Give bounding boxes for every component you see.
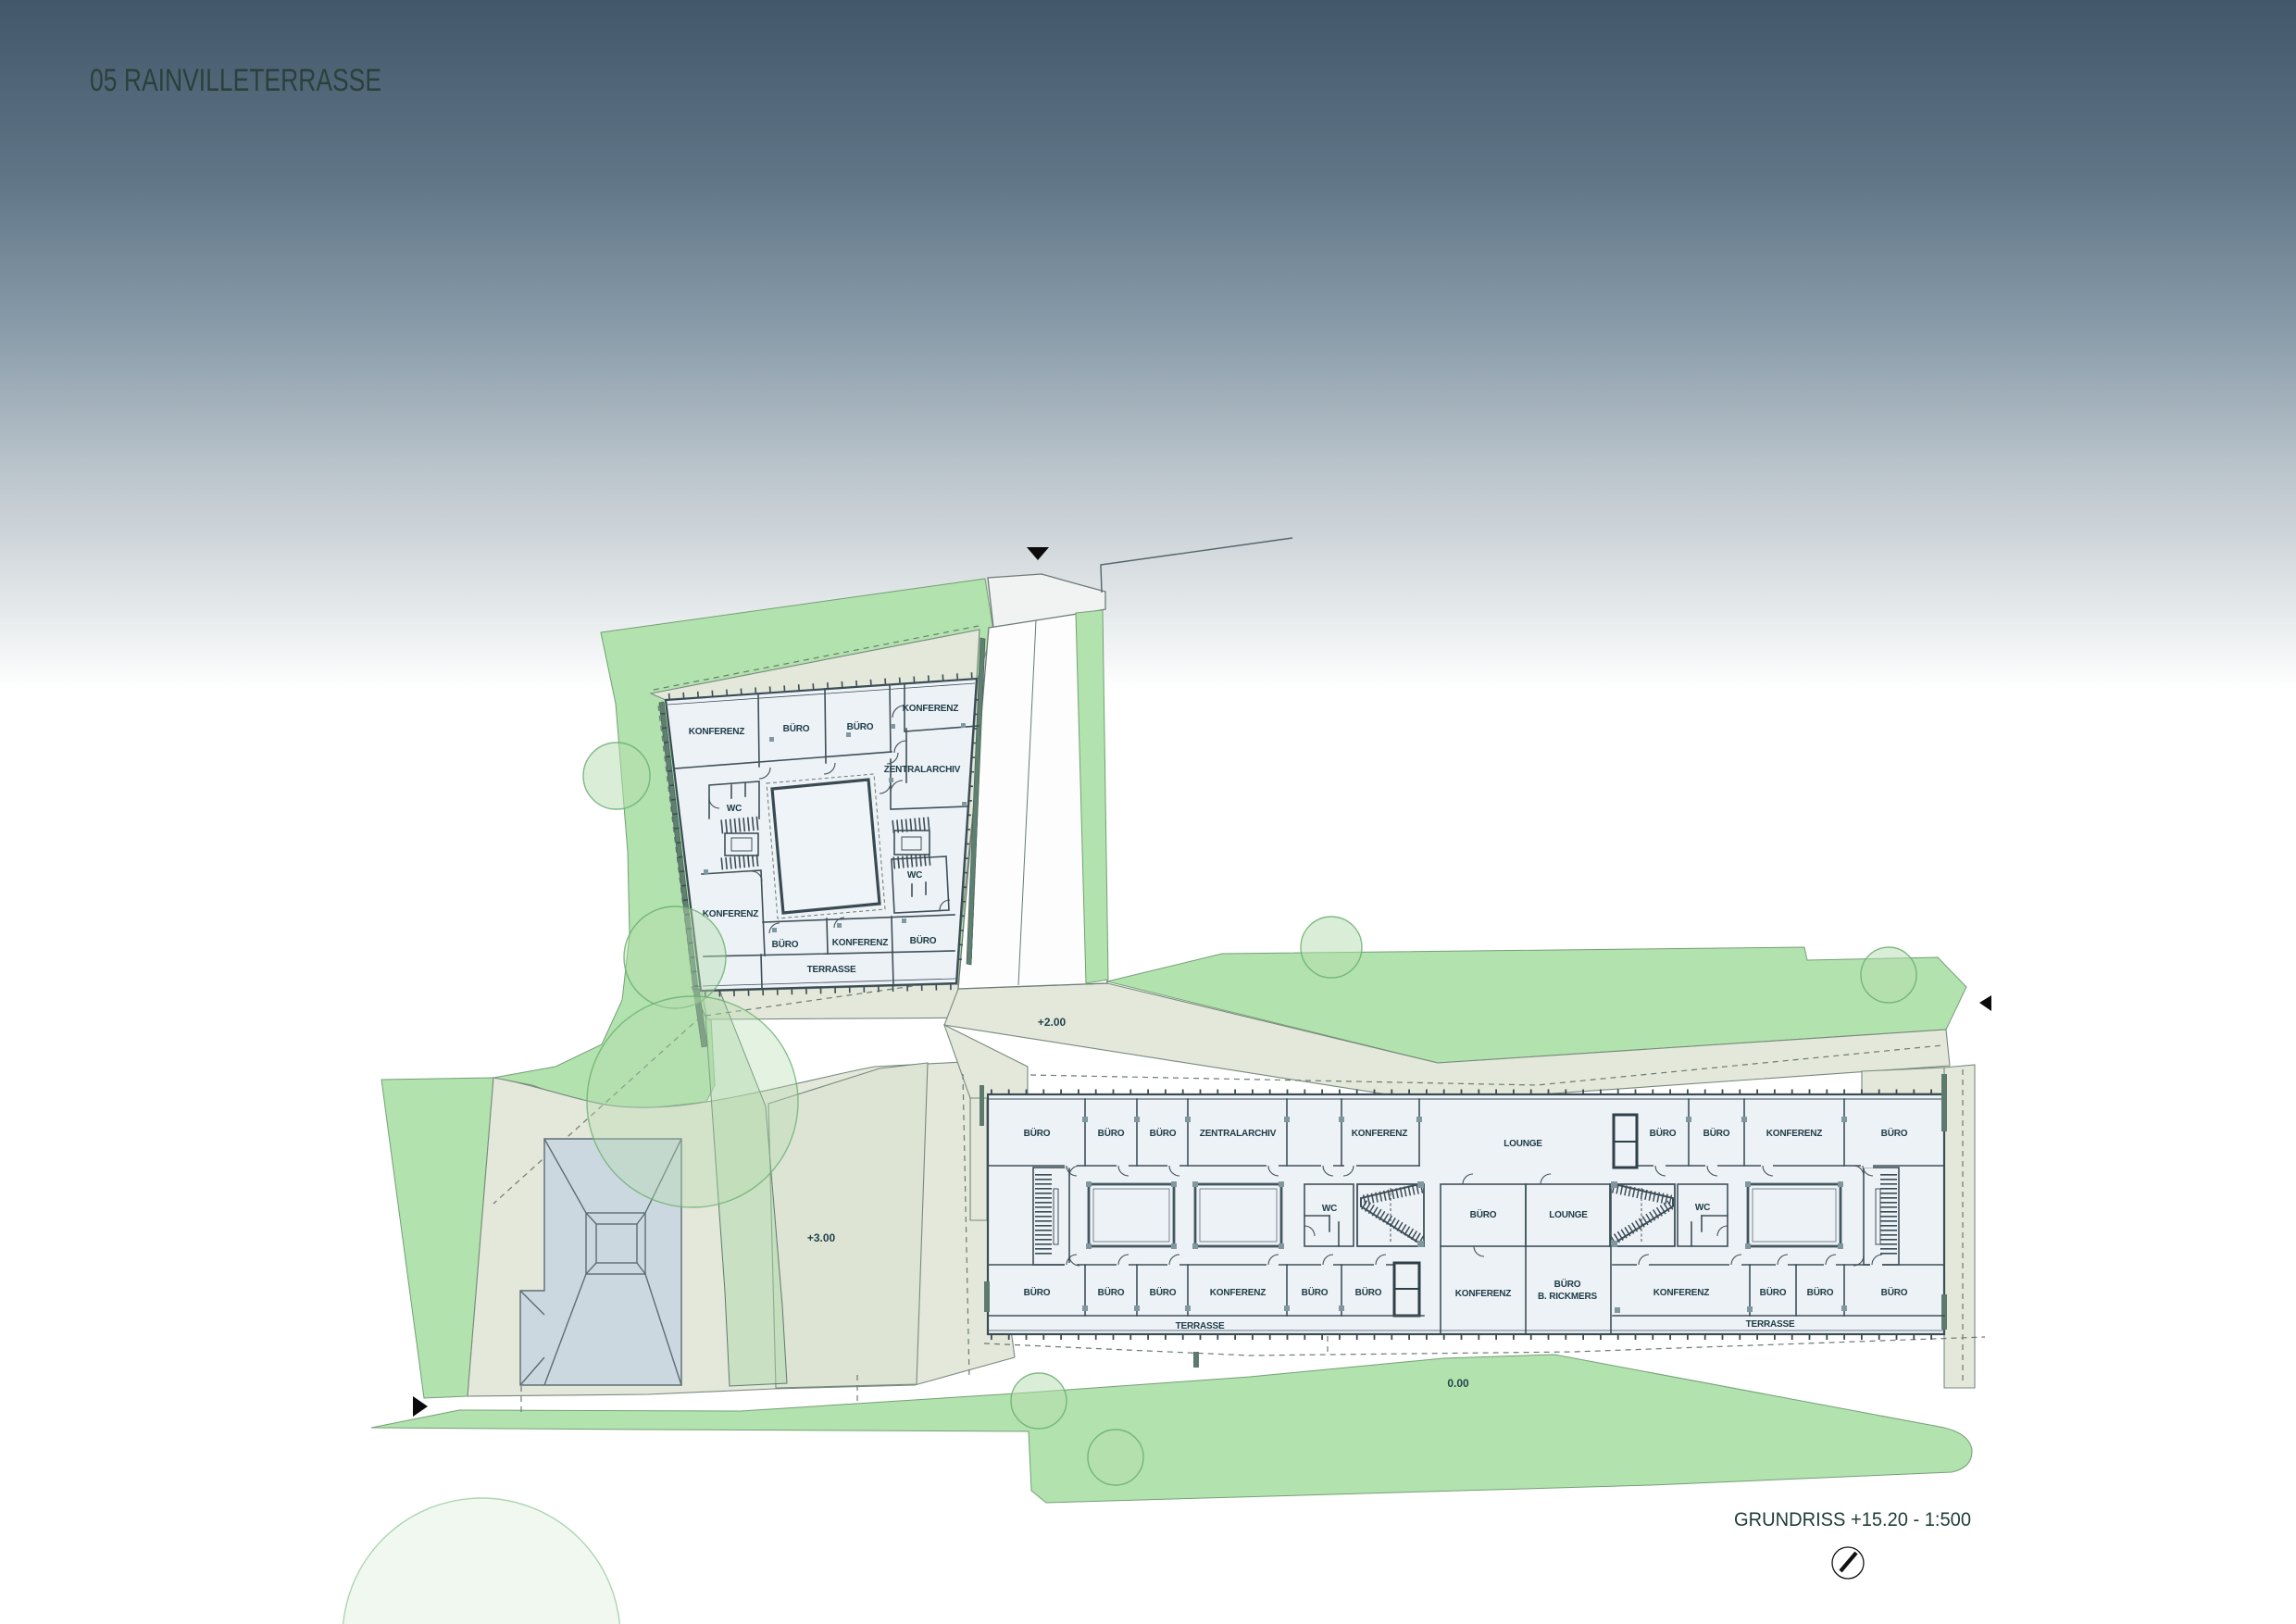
svg-text:BÜRO: BÜRO (1098, 1286, 1125, 1298)
svg-text:BÜRO: BÜRO (1024, 1127, 1051, 1139)
svg-text:BÜRO: BÜRO (772, 938, 799, 950)
svg-text:BÜRO: BÜRO (910, 934, 937, 946)
svg-text:KONFERENZ: KONFERENZ (903, 704, 959, 714)
svg-text:LOUNGE: LOUNGE (1504, 1139, 1542, 1149)
svg-text:WC: WC (1695, 1203, 1710, 1213)
svg-text:KONFERENZ: KONFERENZ (832, 938, 889, 948)
svg-text:GRUNDRISS +15.20 - 1:500: GRUNDRISS +15.20 - 1:500 (1734, 1508, 1971, 1530)
svg-text:+2.00: +2.00 (1038, 1016, 1067, 1029)
svg-text:+3.00: +3.00 (807, 1231, 836, 1244)
svg-text:KONFERENZ: KONFERENZ (1653, 1288, 1710, 1298)
svg-text:BÜRO: BÜRO (1807, 1286, 1834, 1298)
svg-text:ZENTRALARCHIV: ZENTRALARCHIV (1200, 1129, 1277, 1139)
svg-text:BÜRO: BÜRO (1098, 1127, 1125, 1139)
svg-text:B. RICKMERS: B. RICKMERS (1538, 1292, 1597, 1302)
svg-text:TERRASSE: TERRASSE (1176, 1321, 1225, 1331)
svg-text:0.00: 0.00 (1447, 1377, 1469, 1390)
svg-text:BÜRO: BÜRO (1703, 1127, 1730, 1139)
svg-text:BÜRO: BÜRO (1881, 1286, 1908, 1298)
svg-text:BÜRO: BÜRO (1554, 1278, 1581, 1290)
svg-text:WC: WC (907, 870, 922, 881)
svg-text:KONFERENZ: KONFERENZ (703, 909, 759, 919)
svg-text:05 RAINVILLETERRASSE: 05 RAINVILLETERRASSE (90, 63, 381, 98)
svg-text:BÜRO: BÜRO (1024, 1286, 1051, 1298)
svg-text:BÜRO: BÜRO (1150, 1127, 1177, 1139)
svg-text:TERRASSE: TERRASSE (807, 965, 856, 975)
svg-text:BÜRO: BÜRO (1150, 1286, 1177, 1298)
svg-text:BÜRO: BÜRO (1650, 1127, 1677, 1139)
svg-text:WC: WC (727, 804, 742, 814)
svg-text:LOUNGE: LOUNGE (1549, 1210, 1588, 1220)
svg-text:BÜRO: BÜRO (1470, 1208, 1497, 1220)
svg-text:BÜRO: BÜRO (1302, 1286, 1329, 1298)
svg-text:KONFERENZ: KONFERENZ (689, 727, 745, 737)
svg-text:ZENTRALARCHIV: ZENTRALARCHIV (884, 765, 961, 775)
svg-text:BÜRO: BÜRO (1760, 1286, 1787, 1298)
svg-text:KONFERENZ: KONFERENZ (1455, 1289, 1512, 1299)
svg-text:KONFERENZ: KONFERENZ (1352, 1129, 1408, 1139)
svg-text:BÜRO: BÜRO (1355, 1286, 1382, 1298)
svg-text:BÜRO: BÜRO (783, 722, 810, 734)
svg-text:BÜRO: BÜRO (1881, 1127, 1908, 1139)
svg-text:WC: WC (1322, 1204, 1337, 1214)
svg-text:KONFERENZ: KONFERENZ (1210, 1288, 1267, 1298)
svg-text:KONFERENZ: KONFERENZ (1766, 1129, 1823, 1139)
svg-text:TERRASSE: TERRASSE (1746, 1319, 1795, 1330)
svg-text:BÜRO: BÜRO (847, 720, 874, 732)
